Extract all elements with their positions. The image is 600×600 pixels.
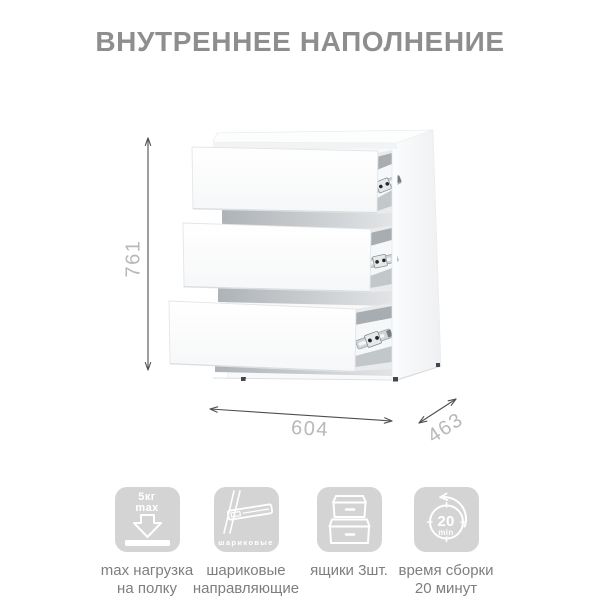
drawer-fronts	[169, 147, 378, 372]
feature-assembly-time: 20 min время сборки 20 минут	[371, 487, 521, 598]
assembly-time-unit: min	[414, 528, 479, 537]
dimension-height-label: 761	[123, 238, 146, 280]
feature-label: время сборки 20 минут	[371, 562, 521, 598]
max-load-badge: 5кг max	[115, 487, 180, 552]
slides-badge: шариковые	[214, 487, 279, 552]
assembly-time-badge: 20 min	[414, 487, 479, 552]
max-load-shelf-icon	[115, 487, 180, 552]
slides-caption: шариковые	[214, 538, 279, 547]
